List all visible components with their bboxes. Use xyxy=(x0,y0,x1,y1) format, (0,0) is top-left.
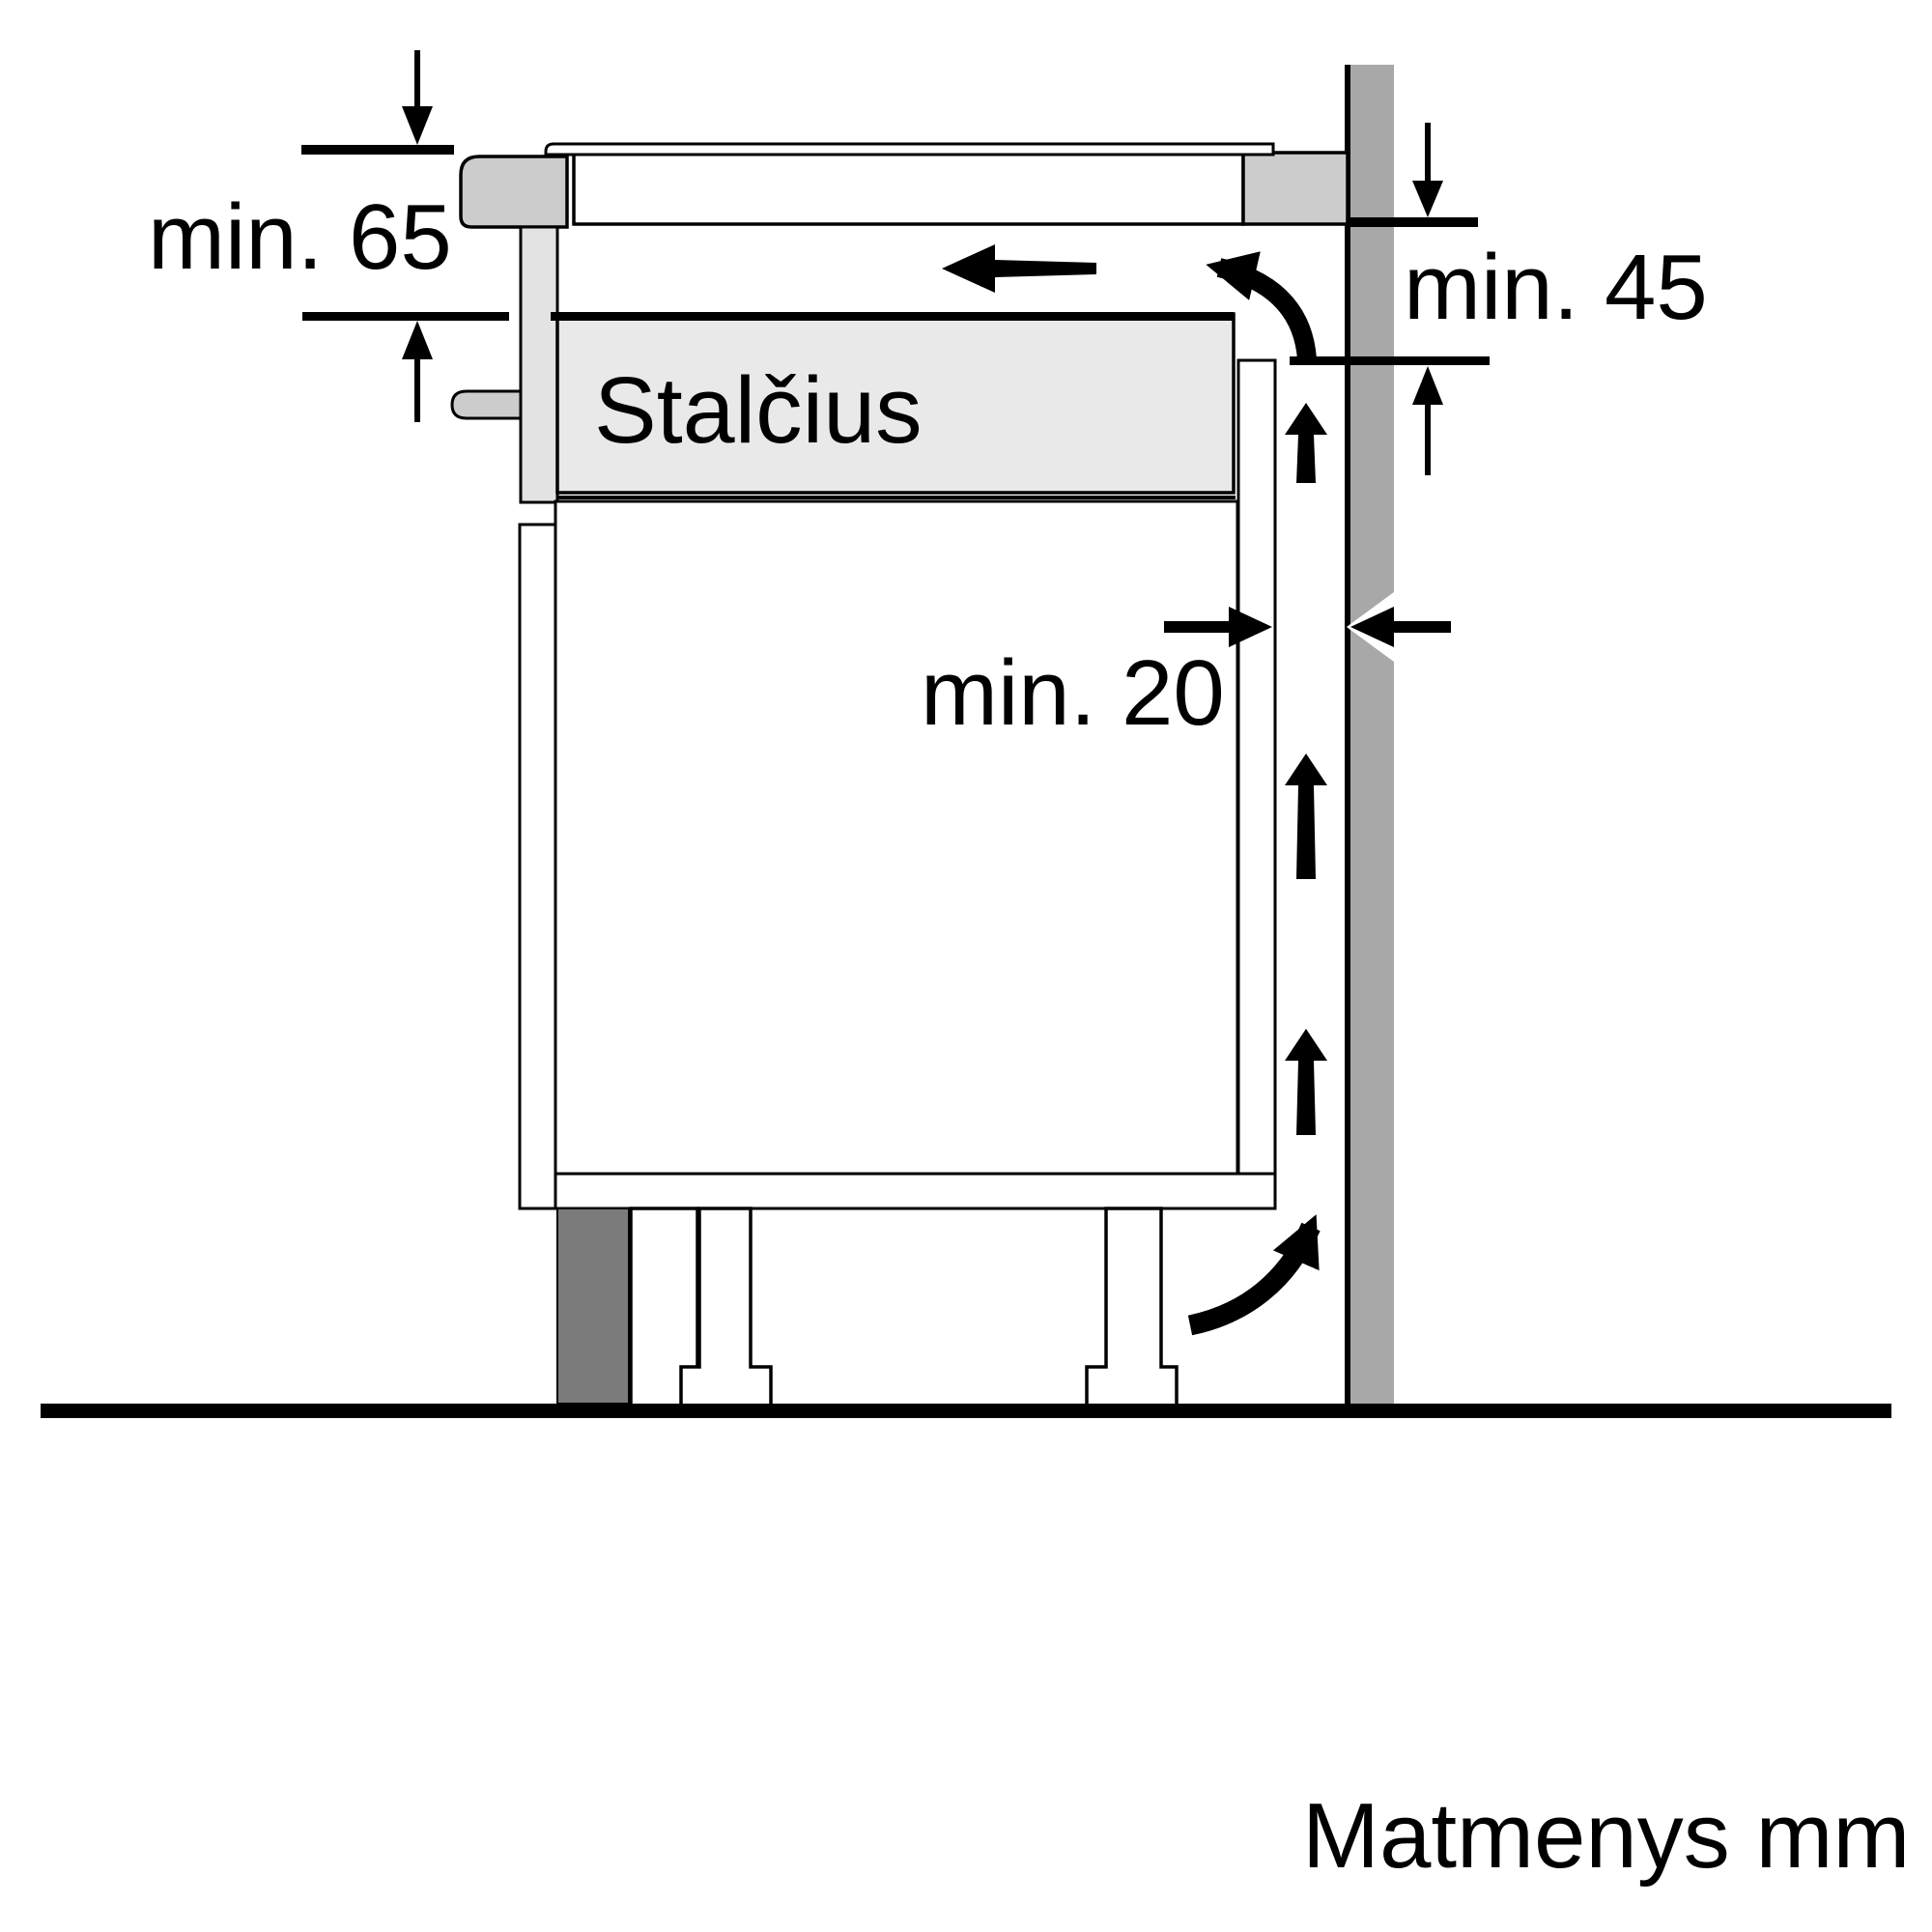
label-units-caption: Matmenys mm xyxy=(1302,1784,1910,1888)
diagram-canvas: min. 65 min. 45 min. 20 Stalčius Matmeny… xyxy=(0,0,1932,1932)
worktop-filler-at-wall xyxy=(1243,153,1348,224)
dim45-line-top xyxy=(1348,217,1478,227)
drawer-top-line xyxy=(551,312,1234,321)
airflow-curve-bottom-icon xyxy=(1190,1227,1311,1325)
plinth-block xyxy=(557,1208,629,1404)
airflow-up-arrow-3-icon xyxy=(1285,1029,1327,1135)
airflow-up-arrow-2-icon xyxy=(1285,753,1327,879)
label-min-45: min. 45 xyxy=(1404,236,1708,339)
vent-back-strip xyxy=(1238,360,1275,1174)
cabinet-interior xyxy=(555,501,1237,1177)
dim65-down-arrow-icon xyxy=(402,106,433,145)
dim45-down-arrow-icon xyxy=(1412,181,1443,217)
dim65-down-arrow-shaft xyxy=(414,50,420,112)
airflow-left-arrow-icon xyxy=(942,244,1096,293)
cabinet-foot-right xyxy=(1087,1208,1177,1406)
dim65-line-top xyxy=(301,145,454,155)
label-min-20: min. 20 xyxy=(921,641,1225,745)
cabinet-bottom-panel xyxy=(555,1174,1275,1208)
dim65-up-arrow-icon xyxy=(402,321,433,359)
dim45-down-arrow-shaft xyxy=(1425,123,1431,183)
dim45-up-arrow-icon xyxy=(1412,366,1443,405)
fixing-peg xyxy=(452,391,521,418)
installation-diagram: min. 65 min. 45 min. 20 Stalčius Matmeny… xyxy=(0,0,1932,1932)
dim65-up-arrow-shaft xyxy=(414,359,420,422)
hob-side-trim xyxy=(521,227,557,502)
hob-front-body xyxy=(461,156,567,227)
wall xyxy=(1350,65,1394,1404)
label-min-65: min. 65 xyxy=(148,185,452,289)
dim45-up-arrow-shaft xyxy=(1425,405,1431,475)
dim45-line-bottom xyxy=(1290,356,1490,365)
dim65-line-bottom xyxy=(302,312,509,321)
hob-glass-panel xyxy=(546,144,1273,155)
drawer-rail-line xyxy=(557,496,1236,499)
cabinet-side-panel xyxy=(520,525,555,1208)
wall-edge-line xyxy=(1345,65,1350,1404)
label-drawer: Stalčius xyxy=(594,357,923,463)
worktop xyxy=(574,153,1243,224)
floor-line xyxy=(41,1404,1891,1418)
airflow-up-arrow-1-icon xyxy=(1285,403,1327,483)
